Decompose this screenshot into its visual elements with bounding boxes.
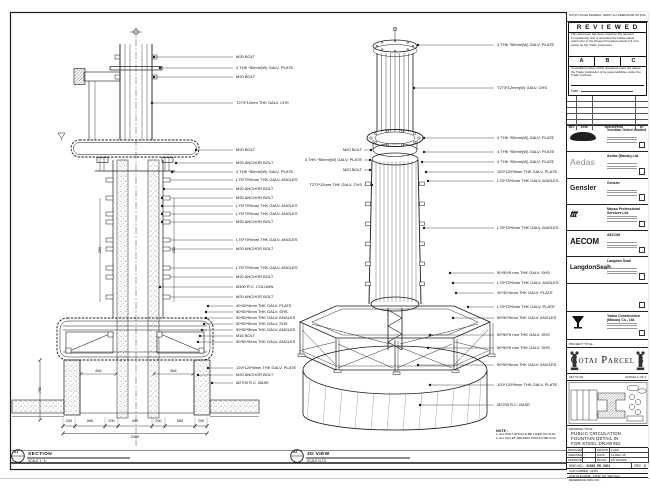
callout-label: M20 BOLT — [236, 75, 255, 80]
callout-label: L75*75*6mm THK GALV. ANGLES — [236, 266, 298, 271]
dimension-value: 750 — [38, 387, 42, 393]
dimension-value: 200 — [108, 419, 114, 423]
checkbox-square — [639, 168, 646, 175]
pillar-icon — [636, 350, 645, 372]
checkbox-square — [639, 247, 646, 254]
callout-label: 4 THK *50mm(W) GALV. PLATE — [497, 136, 554, 141]
dimension-total: 2380 — [131, 435, 139, 439]
callout-label: M20 ANCHOR BOLT — [236, 275, 273, 280]
callout-label: 4 THK *50mm(W) GALV. PLATE — [236, 66, 293, 71]
checkbox-square — [639, 330, 646, 337]
stamp-date-label: Date : — [571, 89, 580, 93]
dimension-value: 200 — [198, 419, 204, 423]
section-detail-number: 01 — [14, 450, 18, 454]
iso-sheet-ref: - — [296, 457, 297, 461]
edge-note: DO NOT SCALE DRAWING. VERIFY ALL DIMENSI… — [567, 12, 648, 22]
drawing-sheet: 01 - SECTION SCALE 1 : 5 02 - 3D VIEW SC… — [0, 0, 650, 488]
note-item: 2. ALL FILLET WELDED SHOULD BE 6mm. — [496, 437, 563, 441]
stamp-grade-b: B — [595, 57, 621, 66]
consultant-address-lines — [607, 216, 637, 223]
checkbox-square — [639, 273, 646, 280]
callout-label: M20 ANCHOR BOLT — [236, 196, 273, 201]
consultant-address-lines — [607, 242, 637, 249]
consultant-box: GenslerGensler — [567, 179, 648, 205]
callout-label: 40*40*4mm THK GALV. PLATE — [236, 304, 292, 309]
section-sheet-ref: - — [17, 457, 18, 461]
callout-label: M20 ANCHOR BOLT — [236, 161, 273, 166]
callout-label: Ø2700 R.C. BASE — [236, 381, 269, 386]
stamp-paragraph: This document has been noted by the rele… — [571, 33, 644, 47]
gensler-logo: Gensler — [570, 183, 605, 195]
checkbox-square — [639, 221, 646, 228]
dwg-no-label: DWG NO : — [567, 463, 584, 468]
consultant-name: Venetian Orient Limited — [607, 129, 647, 133]
langdon-logo: LangdonSeah — [570, 261, 605, 273]
dimension-value: 450 — [132, 419, 138, 423]
contractor-logo-icon — [570, 316, 605, 328]
checkbox-square — [639, 302, 646, 309]
callout-label: M20 BOLT — [236, 55, 255, 60]
consultant-name: AECOM — [607, 234, 647, 238]
consultant-name: Gensler — [607, 182, 647, 186]
callout-label: 50*50*5mm THK GALV. ANGLES — [236, 340, 295, 345]
stamp-grade-c: C — [621, 57, 646, 66]
callout-label: L75*75*6mm THK GALV. ANGLES — [497, 179, 559, 184]
consultant-box: AedasAedas (Macau) Ltd. — [567, 152, 648, 178]
section-view-scale: SCALE 1 : 5 — [28, 459, 46, 463]
callout-label: L75*75*6mm THK GALV. ANGLES — [236, 212, 298, 217]
callout-label: M20 ANCHOR BOLT — [236, 247, 273, 252]
callout-label: L75*75*6mm THK GALV. ANGLES — [497, 281, 559, 286]
reference-row: REFERENCE DWG NO : — [567, 478, 648, 482]
drawing-title-box: DRAWING TITLE : PUBLIC CIRCULATION FOUNT… — [567, 426, 648, 448]
callout-label: T273*12mm(W) GALV. CHS — [497, 86, 547, 91]
consultant-box: tttMacau Professional Services Ltd. — [567, 205, 648, 231]
callout-label: 50*50*5mm THK GALV. ANGLES — [236, 316, 295, 321]
dimension-value: 864 — [95, 369, 101, 373]
iso-view-scale: SCALE N.T.S. — [307, 459, 327, 463]
aedas-logo: Aedas — [570, 156, 605, 168]
callout-label: M20 ANCHOR BOLT — [236, 187, 273, 192]
revision-table: REVDATEDESCRIPTIONBY — [567, 96, 648, 126]
callout-label: M20 ANCHOR BOLT — [236, 295, 273, 300]
iso-detail-number: 02 — [293, 450, 297, 454]
consultant-box: Venetian Orient Limited — [567, 126, 648, 152]
consultant-address-lines — [607, 268, 637, 275]
callout-label: Ø2700 R.C. BASE — [497, 403, 530, 408]
checkbox-square — [639, 142, 646, 149]
checkbox-square — [639, 194, 646, 201]
callout-label: L75*75*6mm THK GALV. ANGLES — [236, 178, 298, 183]
dimension-value: 565 — [87, 419, 93, 423]
callout-label: 120*120*8mm THK GALV. PLATE — [236, 366, 296, 371]
contractor-address-lines — [607, 323, 637, 330]
stamp-date-line — [581, 86, 633, 92]
key-plan-parcel: PARCEL 1 OF 3 — [625, 374, 646, 380]
consultant-box: LangdonSeahLangdon Seah — [567, 257, 648, 283]
callout-label: M20 BOLT — [284, 148, 362, 153]
callout-label: 120*120*8mm THK GALV. PLATE — [497, 170, 557, 175]
consultant-list: Venetian Orient LimitedAedasAedas (Macau… — [567, 126, 648, 284]
callout-label: 50*50*5mm THK GALV. ANGLES — [497, 363, 556, 368]
callout-label: Ø300 R.C. COLUMN — [236, 285, 273, 290]
callout-label: M20 BOLT — [284, 168, 362, 173]
consultant-address-lines — [607, 163, 637, 170]
stamp-paragraph: Consultant review of this document does … — [571, 67, 644, 78]
callout-label: 50*50*5 mm THK GALV. SHS — [497, 271, 550, 276]
signoff-fields: DESIGNED DRAWN LUNG CHECKED - DATE 14-DE… — [567, 448, 648, 463]
dimension-value: 864 — [170, 369, 176, 373]
rev-value: REV : C — [631, 463, 648, 468]
dimension-value: 200 — [155, 419, 161, 423]
empty-consultant-box — [567, 284, 648, 312]
pillar-icon — [570, 350, 579, 372]
dwg-no-value: 31545_PD_0001 — [586, 463, 610, 468]
callout-label: 4 THK *50mm(W) GALV. PLATE — [497, 150, 554, 155]
callout-label: 120*120*8mm THK GALV. PLATE — [497, 383, 557, 388]
project-name: Cotai Parcel 3 — [571, 355, 645, 366]
callout-label: T273*12mm THK GALV. CHS — [236, 101, 289, 106]
callout-label: M20 BOLT — [236, 148, 255, 153]
callout-label: T273*12mm THK GALV. CHS — [284, 183, 362, 188]
title-block: DO NOT SCALE DRAWING. VERIFY ALL DIMENSI… — [566, 12, 648, 470]
callout-label: 50*50*5 mm THK GALV. SHS — [497, 333, 550, 338]
general-notes: NOTE : 1. ALL BOLT SHOULD BE FIXED ON SI… — [496, 429, 563, 441]
callout-label: L75*75*6mm THK GALV. ANGLES — [236, 238, 298, 243]
iso-view-title: 3D VIEW — [307, 452, 330, 457]
consultant-name: Macau Professional Services Ltd. — [607, 208, 647, 216]
consultant-address-lines — [607, 190, 637, 197]
dimension-value: 250 — [172, 247, 176, 253]
annotation-overlay: 01 - SECTION SCALE 1 : 5 02 - 3D VIEW SC… — [0, 0, 650, 488]
callout-label: 4 THK *50mm(W) GALV. PLATE — [497, 160, 554, 165]
consultant-address-lines — [607, 137, 637, 144]
callout-label: 4 THK *50mm(W) GALV. PLATE — [497, 43, 554, 48]
dimension-value: 565 — [177, 419, 183, 423]
stamp-grade-a: A — [569, 57, 595, 66]
project-title-strip: PROJECT TITLE — [567, 340, 648, 348]
callout-label: M20 ANCHOR BOLT — [236, 220, 273, 225]
contractor-name: Yadea Construction (Macau) Co., Ltd. — [607, 315, 647, 323]
aecom-logo: AECOM — [570, 235, 605, 247]
project-banner: Cotai Parcel 3 — [567, 348, 648, 374]
callout-label: 50*50*5mm THK GALV. SHS — [236, 322, 288, 327]
key-plan-label: KEY PLAN — [569, 374, 583, 380]
dimension-value: 200 — [66, 419, 72, 423]
consultant-name: Langdon Seah — [607, 260, 647, 264]
venetian-logo — [570, 130, 605, 142]
section-view-title: SECTION — [28, 452, 52, 457]
callout-label: L75*75*6mm THK GALV. ANGLES — [497, 226, 559, 231]
review-stamp: R E V I E W E D This document has been n… — [568, 22, 647, 96]
key-plan-map — [567, 381, 648, 426]
callout-label: 4 THK *50mm(W) GALV. PLATE — [284, 158, 362, 163]
contractor-box: Yadea Construction (Macau) Co., Ltd. — [567, 312, 648, 340]
callout-label: L75*75*6mm THK GALV. ANGLES — [236, 204, 298, 209]
consultant-box: AECOMAECOM — [567, 231, 648, 257]
consultant-name: Aedas (Macau) Ltd. — [607, 155, 647, 159]
callout-label: 50*50*5mm THK GALV. ANGLES — [236, 328, 295, 333]
stamp-date-row: Date : — [571, 85, 644, 94]
callout-label: 50*50*5mm THK GALV. ANGLES — [497, 316, 556, 321]
key-plan-strip: KEY PLAN PARCEL 1 OF 3 — [567, 374, 648, 381]
callout-label: M20 ANCHOR BOLT — [236, 373, 273, 378]
dimension-value: 250 — [98, 247, 102, 253]
mps-logo: ttt — [570, 209, 605, 221]
callout-label: 50*50*5 mm THK GALV. SHS — [497, 346, 550, 351]
callout-label: 50*50*5mm THK GALV. SHS — [236, 310, 288, 315]
callout-label: M16 BOLT — [236, 334, 255, 339]
callout-label: L75*75*6mm THK GALV. PLATE — [497, 305, 555, 310]
callout-label: 40*40*4mm THK GALV. PLATE — [497, 291, 553, 296]
drawing-title-line: FOR STEEL DRAWING — [567, 441, 648, 446]
